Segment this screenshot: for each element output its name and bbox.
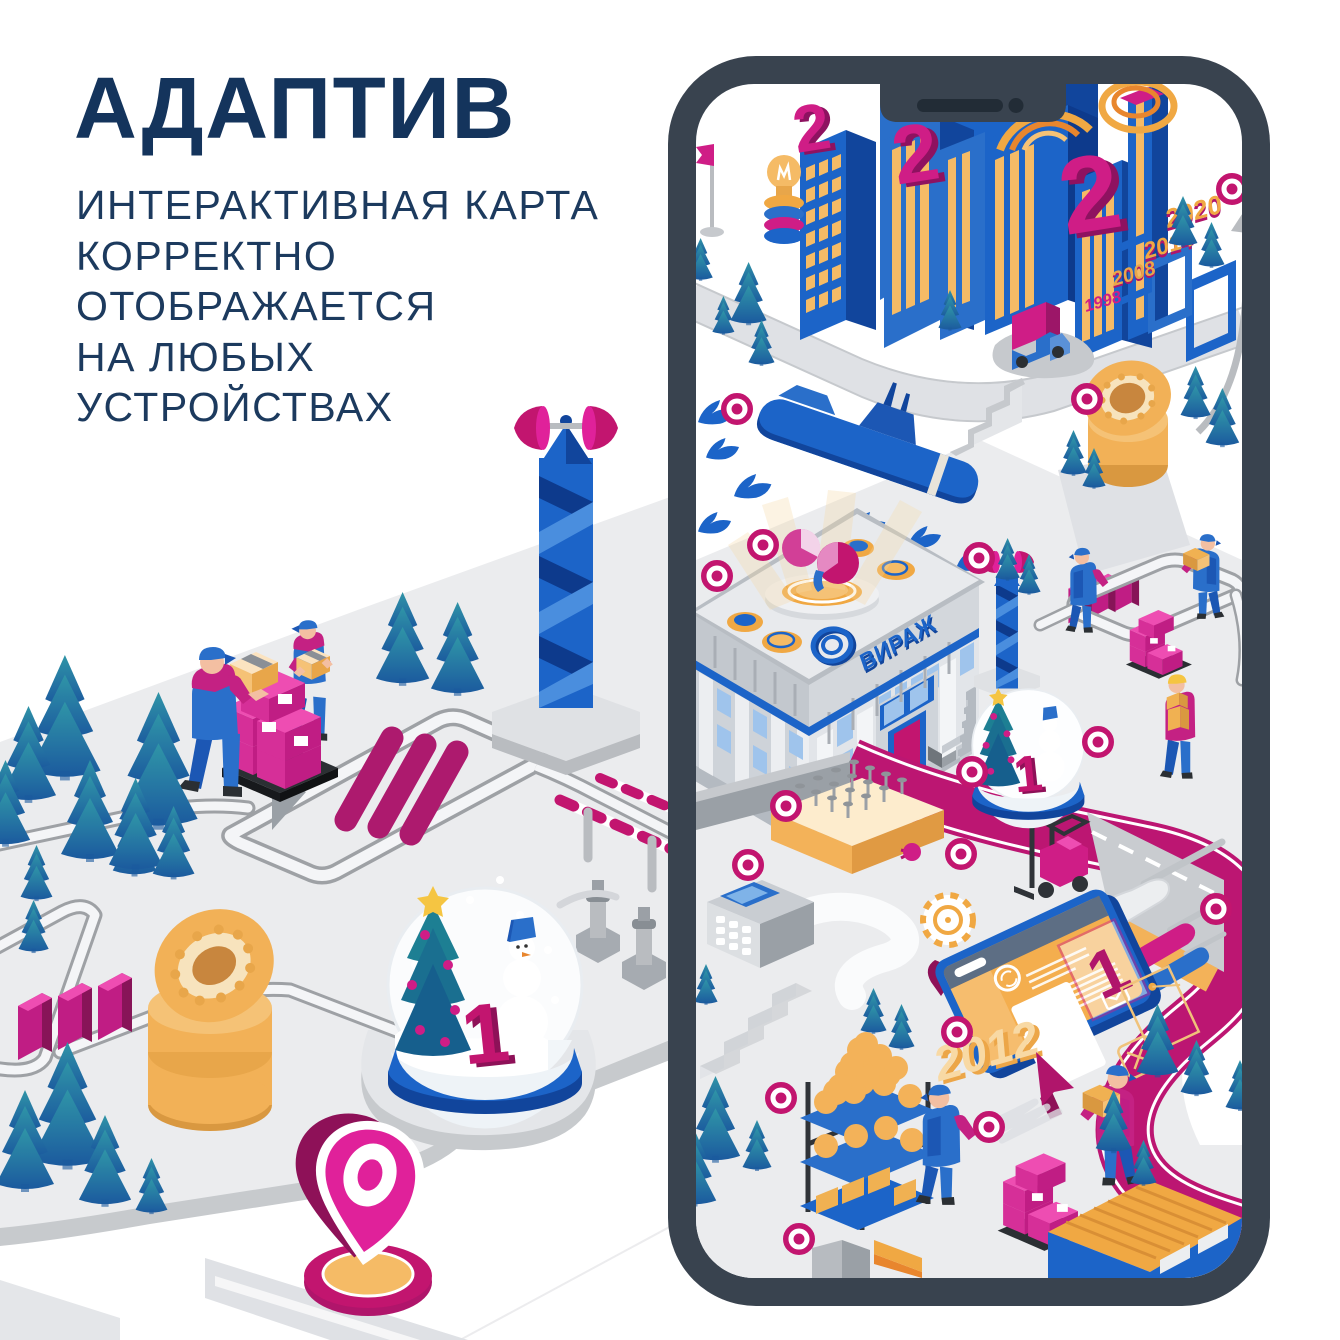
svg-text:ОТОБРАЖАЕТСЯ: ОТОБРАЖАЕТСЯ [76,283,437,329]
svg-text:1: 1 [1011,744,1045,804]
svg-text:КОРРЕКТНО: КОРРЕКТНО [76,233,337,279]
svg-text:АДАПТИВ: АДАПТИВ [74,60,516,157]
svg-text:НА ЛЮБЫХ: НА ЛЮБЫХ [76,334,315,380]
svg-text:ИНТЕРАКТИВНАЯ КАРТА: ИНТЕРАКТИВНАЯ КАРТА [76,182,599,228]
svg-text:УСТРОЙСТВАХ: УСТРОЙСТВАХ [76,384,394,430]
svg-text:1: 1 [457,984,513,1082]
